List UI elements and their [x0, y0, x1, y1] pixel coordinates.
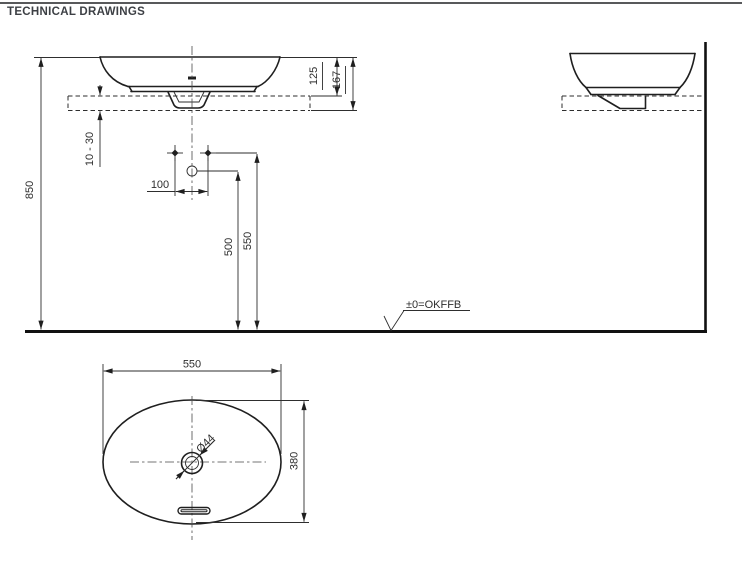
countertop-front — [68, 96, 357, 111]
datum-mark: ±0=OKFFB — [384, 299, 470, 331]
dimension-counter-thickness: 10 - 30 — [84, 85, 100, 167]
dim-550-vertical-label: 550 — [242, 232, 254, 250]
datum-label: ±0=OKFFB — [406, 299, 461, 311]
dim-drain-diameter-label: Ø44 — [194, 432, 217, 455]
dim-125-label: 125 — [308, 67, 320, 85]
dim-100-label: 100 — [151, 179, 169, 191]
dimension-rim-to-counter-bottom: 167 — [331, 58, 353, 110]
dim-167-label: 167 — [331, 71, 343, 89]
dimension-outlet-height: 500 — [197, 171, 238, 330]
basin-side-outline — [570, 54, 695, 95]
technical-drawing-page: TECHNICAL DRAWINGS 850 — [0, 0, 742, 564]
drain-fitting-front — [168, 92, 210, 108]
basin-front-outline — [100, 57, 280, 92]
dim-plan-380-label: 380 — [289, 452, 301, 470]
dim-10-30-label: 10 - 30 — [84, 132, 96, 166]
dimension-mounting-height: 850 — [24, 58, 100, 330]
tap-holes — [167, 145, 216, 161]
dim-mounting-height-label: 850 — [24, 181, 36, 199]
front-view: 850 — [24, 46, 707, 332]
drain-plan: Ø44 — [176, 432, 217, 479]
side-view — [562, 42, 706, 333]
overflow-slot-plan — [178, 508, 210, 515]
technical-drawing-canvas: 850 — [0, 0, 742, 564]
plan-view: 550 380 Ø44 — [103, 359, 309, 541]
dimension-tap-hole-spacing: 100 — [147, 158, 208, 196]
dim-500-label: 500 — [223, 238, 235, 256]
dim-plan-550-label: 550 — [183, 359, 201, 371]
dimension-basin-depth: 380 — [196, 401, 309, 523]
drain-fitting-side — [598, 96, 646, 109]
